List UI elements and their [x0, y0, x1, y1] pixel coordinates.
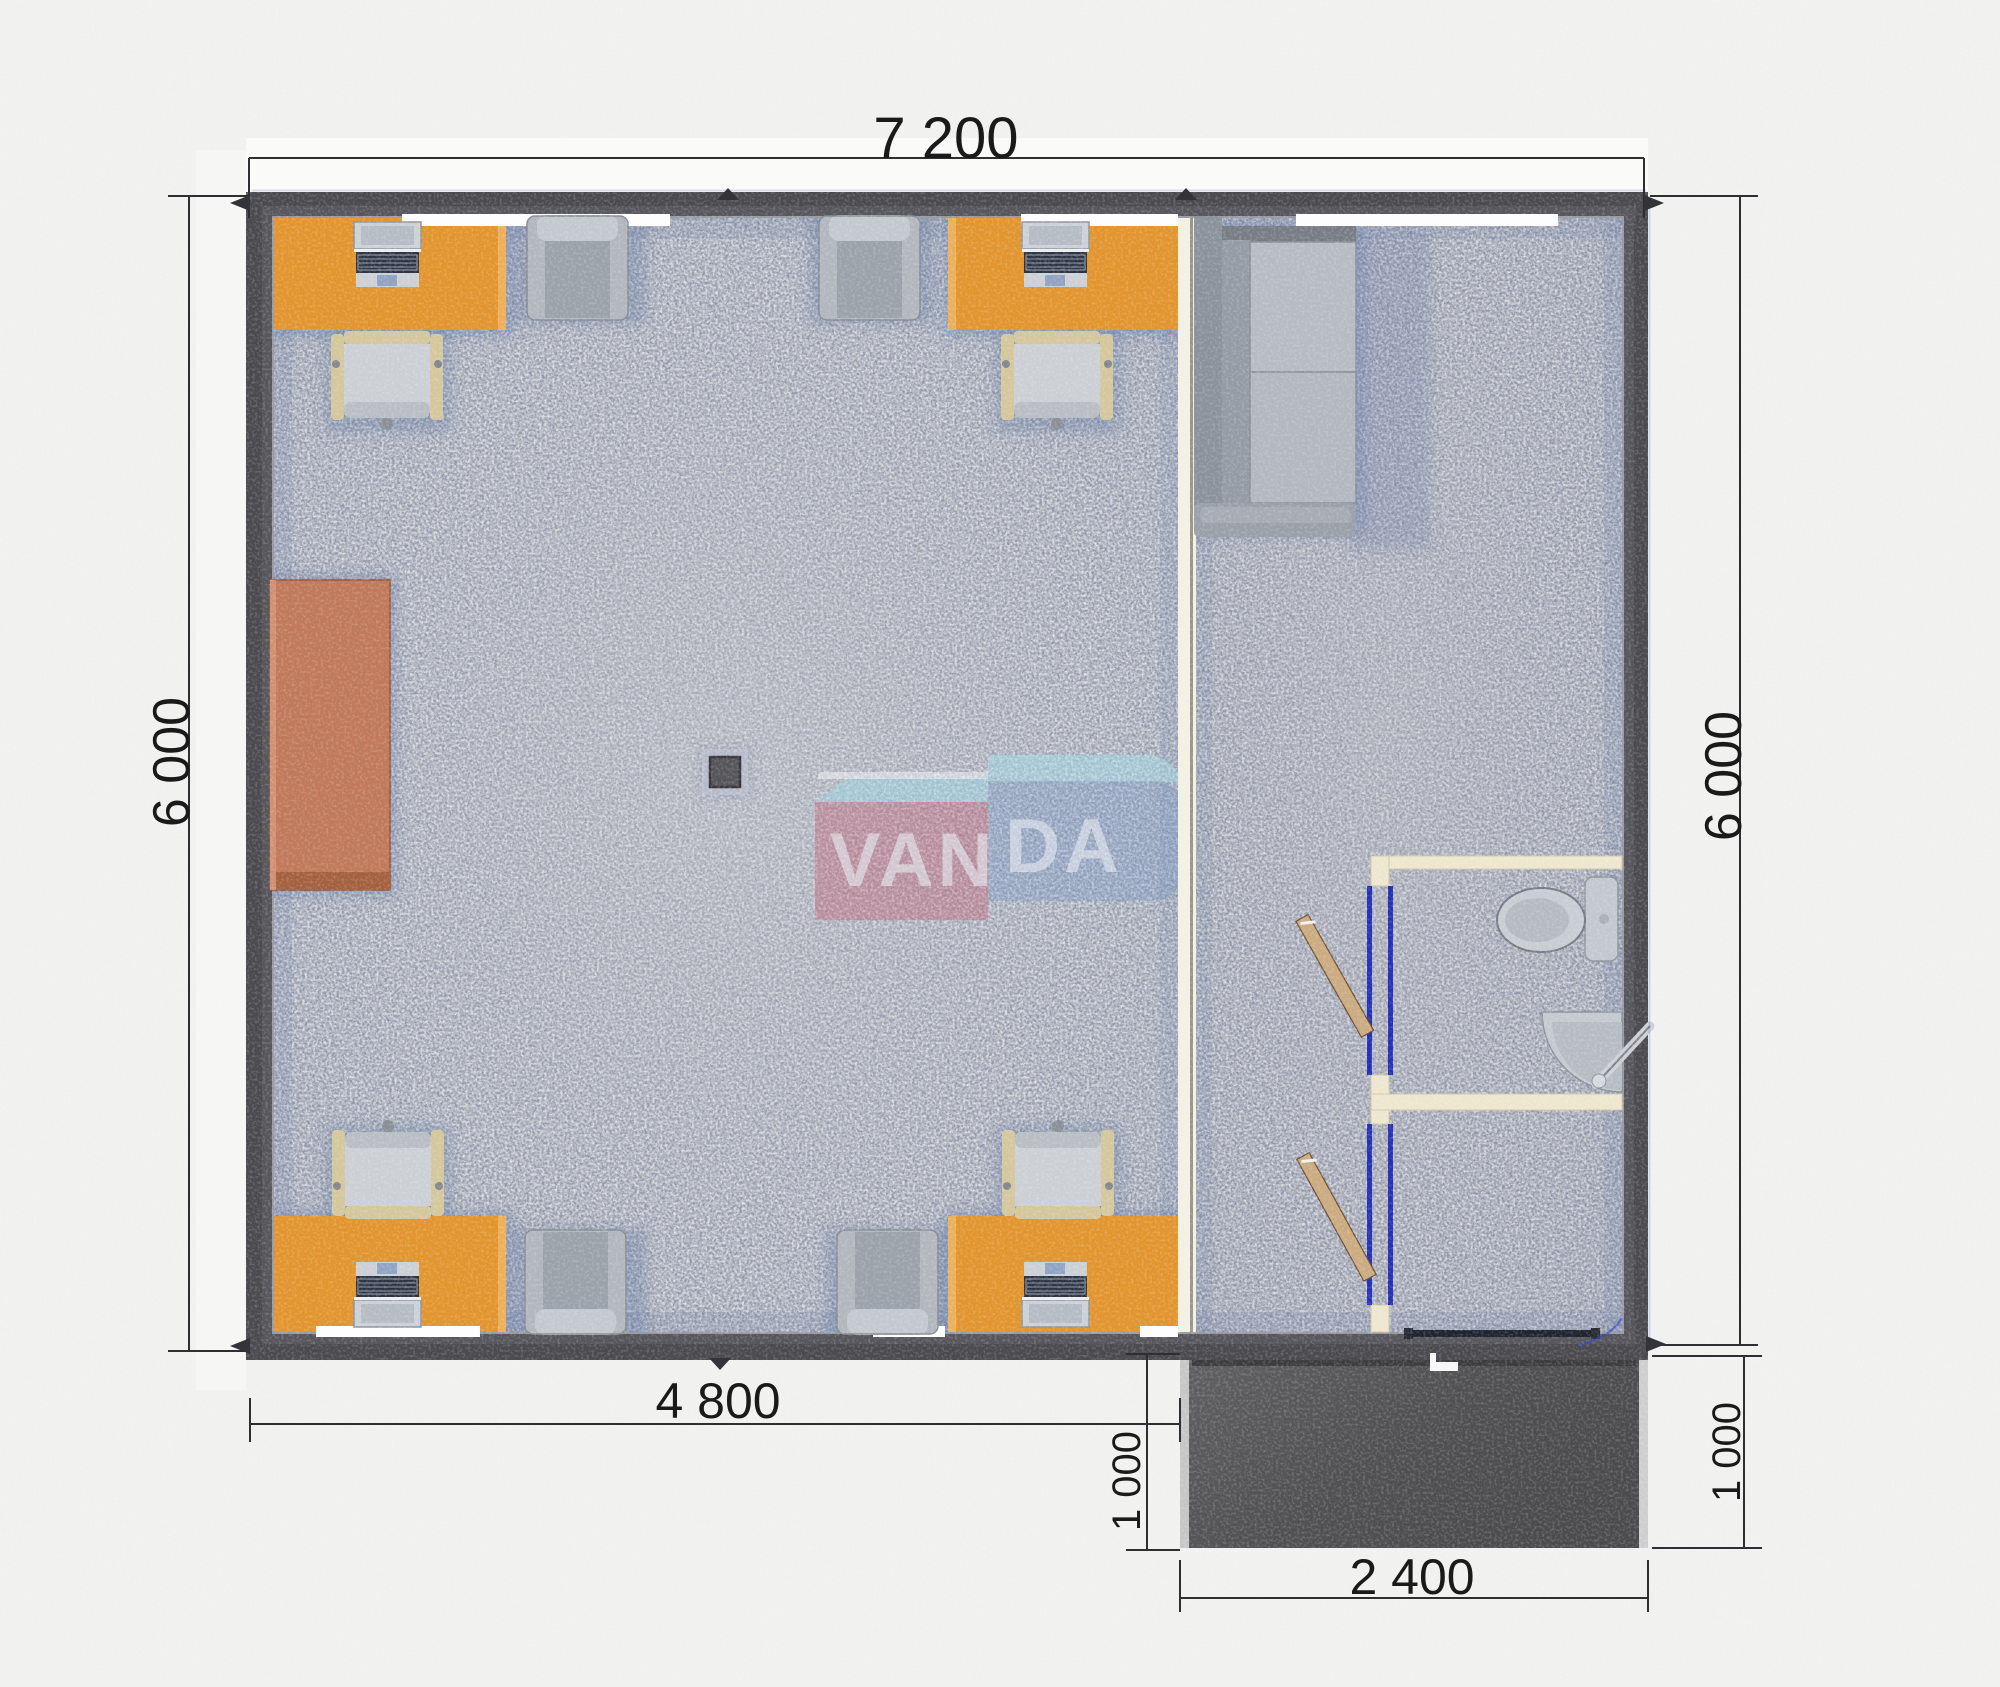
svg-text:6 000: 6 000	[143, 697, 201, 827]
svg-text:2 400: 2 400	[1349, 1549, 1474, 1605]
svg-text:1 000: 1 000	[1705, 1402, 1749, 1502]
svg-text:7 200: 7 200	[873, 106, 1018, 171]
svg-text:1 000: 1 000	[1105, 1431, 1149, 1531]
svg-text:4 800: 4 800	[655, 1373, 780, 1429]
svg-text:6 000: 6 000	[1695, 711, 1753, 841]
